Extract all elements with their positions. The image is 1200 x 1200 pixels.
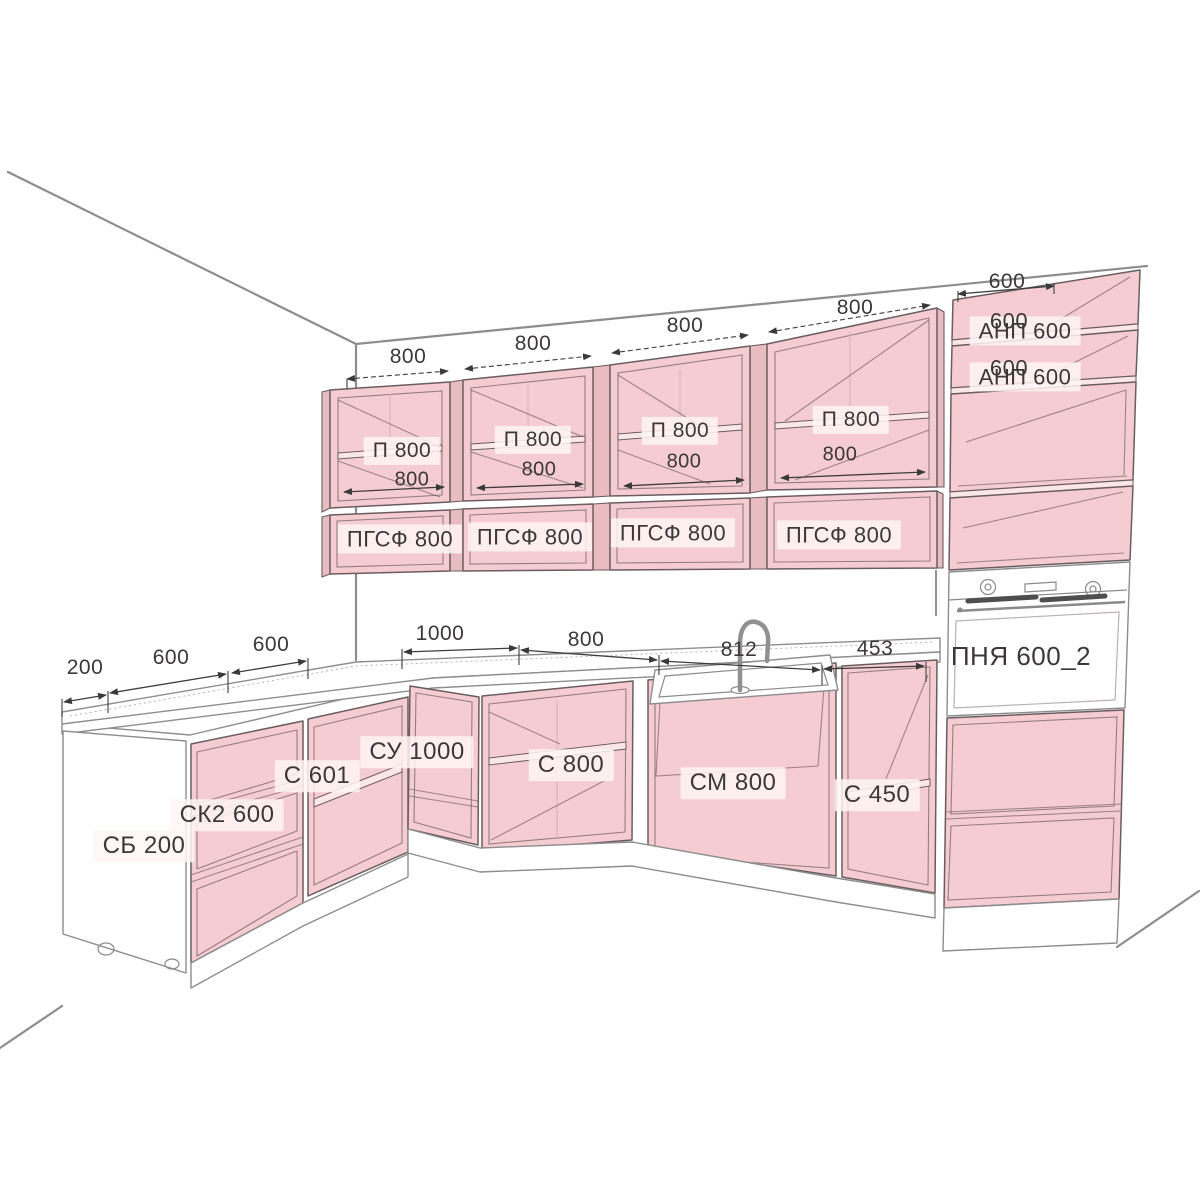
cabinet-label-sm800: СМ 800 bbox=[681, 767, 786, 799]
upper-width-dim: 800 bbox=[667, 314, 704, 338]
base-dim: 1000 bbox=[416, 622, 465, 646]
base-dim: 812 bbox=[721, 638, 758, 662]
base-dim: 453 bbox=[857, 637, 894, 661]
kitchen-layout-diagram: 800 800 800 800 600 П 800 П 800 П 800 П … bbox=[0, 0, 1200, 1200]
cabinet-label-pgsf: ПГСФ 800 bbox=[777, 520, 901, 549]
cabinet-label-pgsf: ПГСФ 800 bbox=[611, 518, 735, 547]
cabinet-label-pgsf: ПГСФ 800 bbox=[338, 524, 462, 553]
anp-depth-dim: 600 bbox=[990, 355, 1028, 380]
cabinet-label-p800: П 800 bbox=[364, 437, 440, 465]
cabinet-inner-dim: 800 bbox=[522, 459, 557, 482]
cabinet-label-p800: П 800 bbox=[813, 406, 889, 434]
tall-base-drawers bbox=[944, 710, 1124, 908]
upper-width-dim: 800 bbox=[390, 345, 427, 369]
cabinet-label-su1000: СУ 1000 bbox=[360, 736, 473, 768]
anp-depth-dim: 600 bbox=[990, 308, 1028, 333]
cabinet-s-450-front bbox=[842, 660, 937, 893]
upper-width-dim: 800 bbox=[837, 296, 874, 320]
cabinet-label-sk2-600: СК2 600 bbox=[171, 799, 284, 831]
cabinet-label-p800: П 800 bbox=[495, 426, 571, 454]
upper-width-dim: 800 bbox=[515, 332, 552, 356]
floor-line-right bbox=[1117, 891, 1199, 947]
base-dim: 600 bbox=[153, 646, 190, 670]
cabinet-label-s800: С 800 bbox=[529, 749, 614, 781]
tall-open-section-2 bbox=[949, 486, 1133, 570]
cabinet-label-s450: С 450 bbox=[835, 779, 920, 811]
plinth-tall bbox=[943, 899, 1119, 951]
oven-label: ПНЯ 600_2 bbox=[951, 642, 1091, 672]
base-dim: 800 bbox=[568, 628, 605, 652]
cabinet-label-sb200: СБ 200 bbox=[94, 830, 195, 862]
cabinet-inner-dim: 800 bbox=[667, 451, 702, 474]
cabinet-label-s601: С 601 bbox=[275, 760, 360, 792]
base-dim: 600 bbox=[253, 633, 290, 657]
base-dim: 200 bbox=[67, 656, 104, 680]
cabinet-inner-dim: 800 bbox=[823, 444, 858, 467]
tall-column-top-dim: 600 bbox=[989, 270, 1026, 294]
cabinet-label-p800: П 800 bbox=[642, 417, 718, 445]
floor-line-left bbox=[0, 1006, 62, 1048]
built-in-oven bbox=[947, 562, 1130, 716]
kitchen-drawing bbox=[0, 0, 1200, 1200]
tall-open-section-1 bbox=[950, 382, 1136, 492]
cabinet-inner-dim: 800 bbox=[395, 469, 430, 492]
cabinet-label-pgsf: ПГСФ 800 bbox=[468, 522, 592, 551]
